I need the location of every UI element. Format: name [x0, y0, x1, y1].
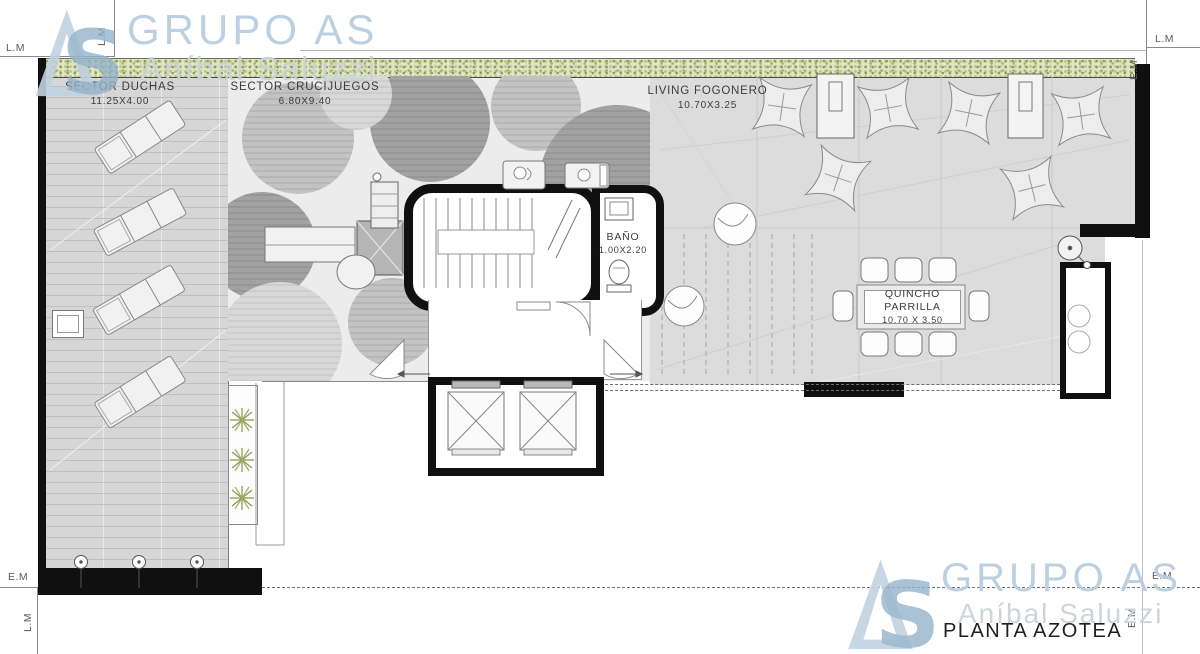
palm-plants: [230, 408, 254, 510]
lounge-chair: [93, 188, 187, 257]
dining-chair: [861, 258, 888, 282]
planter-step-lines: [256, 381, 284, 545]
boundary-label-em-vertical: E.M: [1128, 60, 1140, 80]
elevator-sill: [524, 381, 572, 388]
floor-plan-canvas: L.M L.M L.M E.M E.M L.M E.M E.M SECTOR D…: [0, 0, 1200, 654]
dining-chair: [969, 291, 989, 321]
round-pouf: [337, 255, 375, 289]
sun-bed: [565, 163, 609, 188]
as-monogram-logo-bottom: S: [840, 556, 940, 651]
play-area-furniture: [265, 161, 609, 289]
boundary-label-em: E.M: [8, 571, 28, 583]
as-monogram-logo-top: S: [26, 6, 126, 98]
label-quincho-parrilla: QUINCHO PARRILLA 10.70 X 3.50: [864, 290, 961, 324]
lot-line-top-right-v: [1146, 0, 1147, 64]
dining-chair: [929, 332, 956, 356]
toilet-icon: [609, 260, 629, 284]
door-swing-right: [604, 340, 638, 379]
lot-line-bottom-left-v: [37, 587, 38, 654]
palm-plant-icon: [230, 486, 254, 510]
dining-chair: [929, 258, 956, 282]
sink-icon: [605, 198, 633, 220]
watermark-owner-top: Aníbal Saluzzi: [140, 50, 377, 88]
drawing-title: PLANTA AZOTEA: [943, 620, 1122, 643]
deck-posts: [75, 556, 204, 589]
door-swing-stair: [556, 302, 590, 336]
living-furniture: [753, 74, 1111, 220]
elevators: [448, 381, 576, 455]
lobby-doors: [370, 302, 642, 379]
elevator-sill: [452, 381, 500, 388]
round-planters: [664, 203, 756, 326]
boundary-label-lm: L.M: [1155, 33, 1174, 45]
dining-chair: [833, 291, 853, 321]
lot-line-top-right: [1146, 47, 1200, 48]
sun-bed: [503, 161, 545, 189]
stair-treads: [424, 198, 580, 288]
lounge-chair: [93, 265, 186, 336]
label-living-fogonero: LIVING FOGONERO 10.70X3.25: [645, 84, 770, 112]
side-table: [817, 74, 854, 138]
lot-line-bottom-left: [0, 587, 38, 588]
monogram-s-letter: S: [875, 561, 940, 651]
watermark-company-top: GRUPO AS: [127, 6, 378, 54]
deck-loungers: [93, 100, 187, 429]
side-table: [1008, 74, 1043, 138]
lot-line-top: [300, 50, 1147, 51]
label-bano: BAÑO 1.00X2.20: [594, 231, 652, 256]
palm-plant-icon: [230, 448, 254, 472]
parrilla-details: [1058, 236, 1091, 353]
dining-chair: [895, 258, 922, 282]
palm-plant-icon: [230, 408, 254, 432]
monogram-s-letter: S: [61, 11, 125, 98]
door-swing-left: [370, 340, 404, 379]
grill-icon: [1058, 236, 1091, 269]
lounge-chair: [94, 355, 186, 428]
dining-chair: [895, 332, 922, 356]
boundary-label-lm: L.M: [6, 42, 25, 54]
lounge-chair: [94, 100, 186, 174]
grill-cart: [371, 182, 398, 228]
watermark-company-bottom: GRUPO AS: [941, 556, 1182, 601]
dining-chair: [861, 332, 888, 356]
boundary-label-lm-vertical: L.M: [22, 613, 34, 632]
